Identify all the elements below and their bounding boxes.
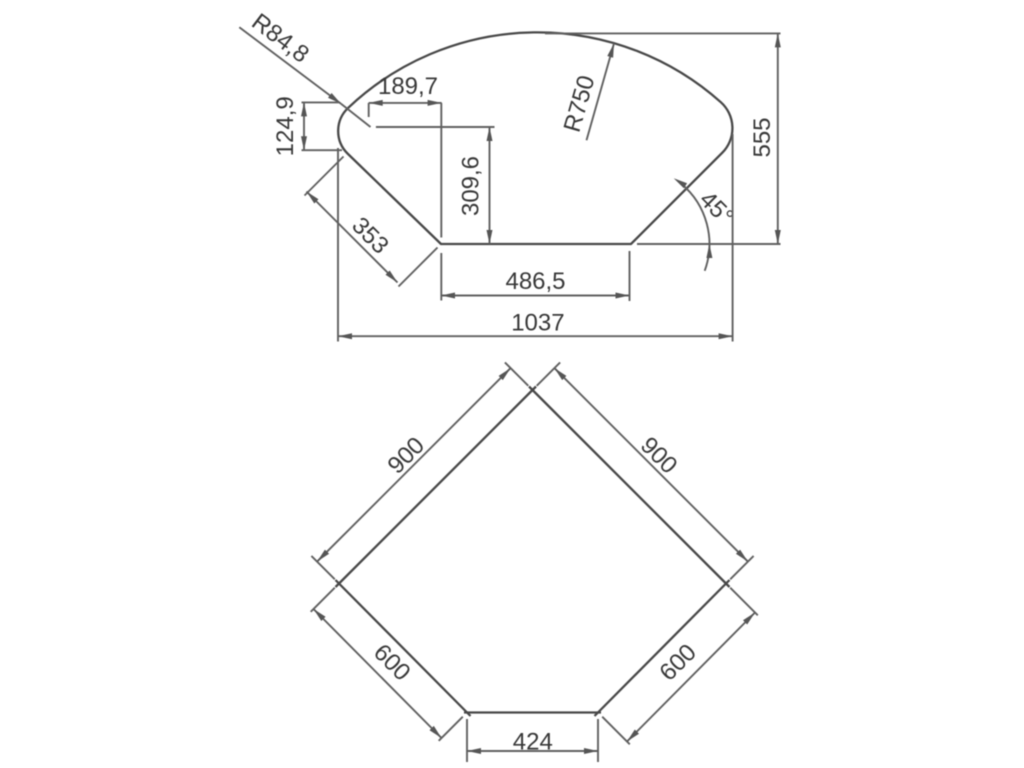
svg-text:900: 900 — [383, 432, 430, 479]
svg-text:124,9: 124,9 — [272, 96, 299, 156]
svg-text:189,7: 189,7 — [378, 73, 438, 100]
svg-text:R84,8: R84,8 — [246, 8, 313, 68]
svg-text:R750: R750 — [559, 73, 601, 136]
svg-text:1037: 1037 — [511, 310, 564, 337]
svg-text:309,6: 309,6 — [458, 156, 485, 216]
svg-text:424: 424 — [513, 729, 553, 756]
svg-text:600: 600 — [368, 639, 415, 686]
svg-text:900: 900 — [635, 432, 682, 479]
svg-text:486,5: 486,5 — [505, 268, 565, 295]
svg-text:353: 353 — [346, 212, 393, 259]
svg-text:600: 600 — [654, 639, 701, 686]
svg-text:555: 555 — [749, 117, 776, 157]
